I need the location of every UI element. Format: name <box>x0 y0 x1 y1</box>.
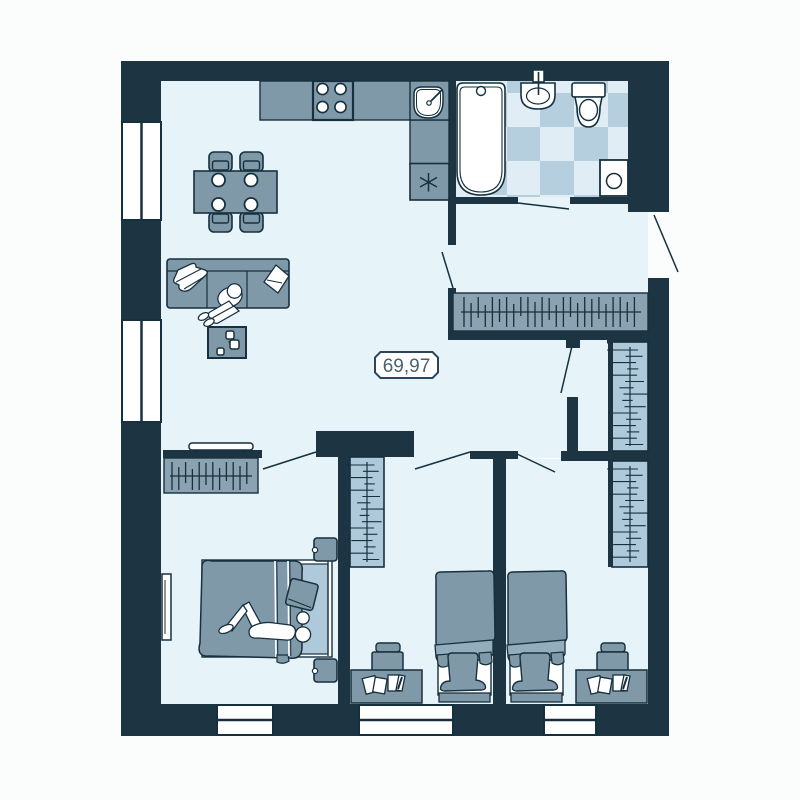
svg-text:69,97: 69,97 <box>383 356 431 377</box>
